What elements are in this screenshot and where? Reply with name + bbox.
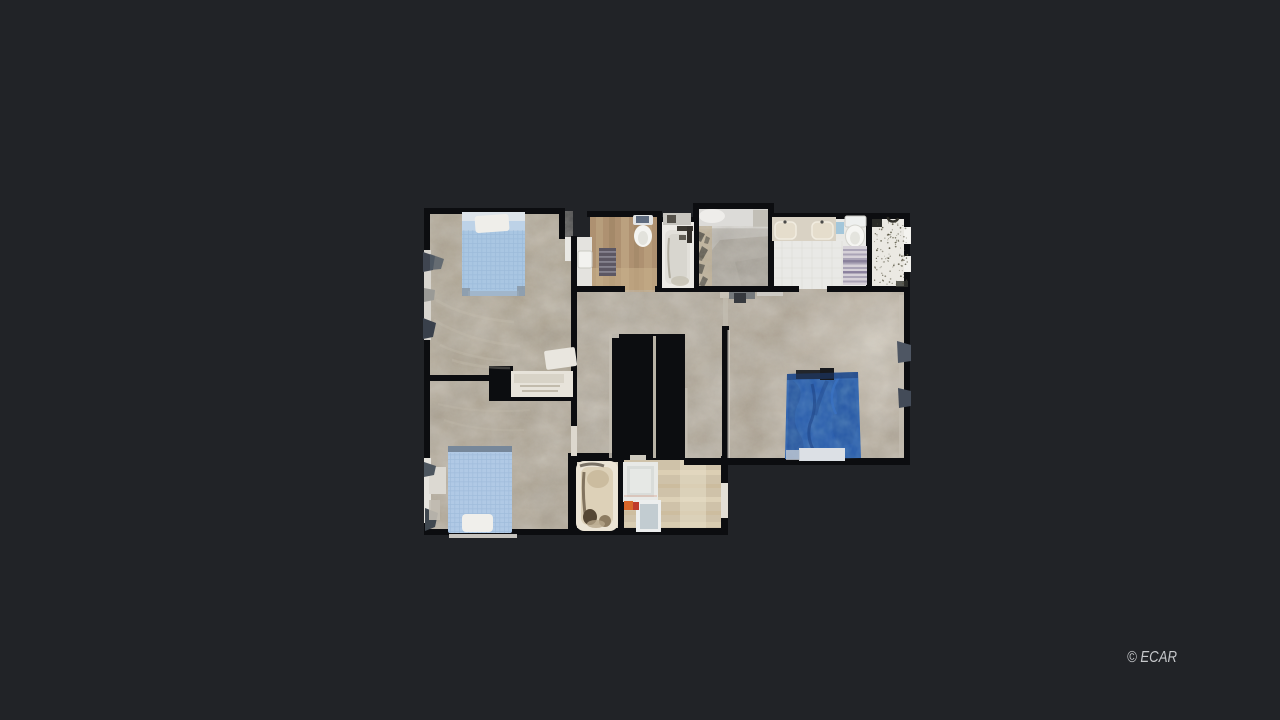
svg-text:© ECAR: © ECAR bbox=[1127, 649, 1177, 666]
